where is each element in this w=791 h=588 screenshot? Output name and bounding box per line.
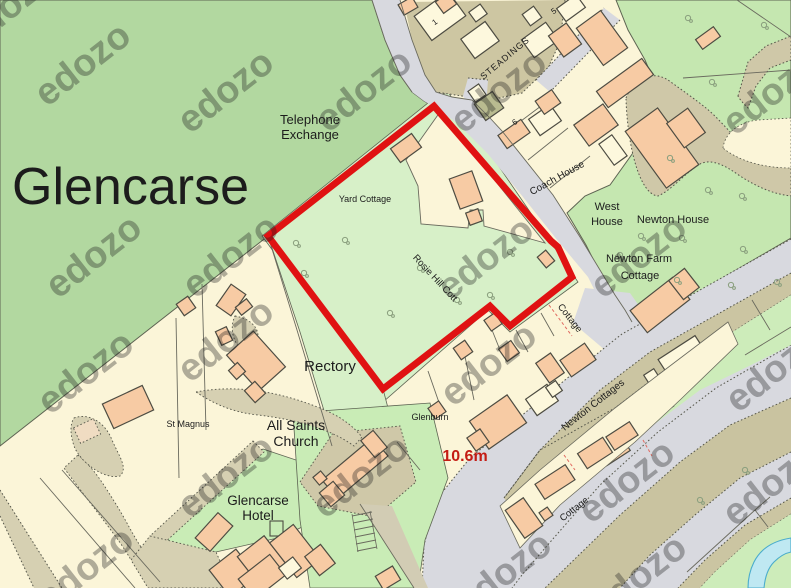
svg-text:All Saints: All Saints <box>267 417 325 433</box>
svg-text:Church: Church <box>273 433 318 449</box>
svg-text:Glencarse: Glencarse <box>227 493 289 508</box>
svg-text:West: West <box>595 201 620 213</box>
svg-text:Rectory: Rectory <box>304 358 356 375</box>
svg-text:House: House <box>591 216 623 228</box>
svg-text:Hotel: Hotel <box>242 508 274 523</box>
svg-text:10.6m: 10.6m <box>442 448 487 465</box>
svg-text:Yard Cottage: Yard Cottage <box>339 194 391 204</box>
svg-text:Glenburn: Glenburn <box>411 412 448 422</box>
svg-text:Glencarse: Glencarse <box>12 158 249 216</box>
svg-text:St Magnus: St Magnus <box>166 419 210 429</box>
